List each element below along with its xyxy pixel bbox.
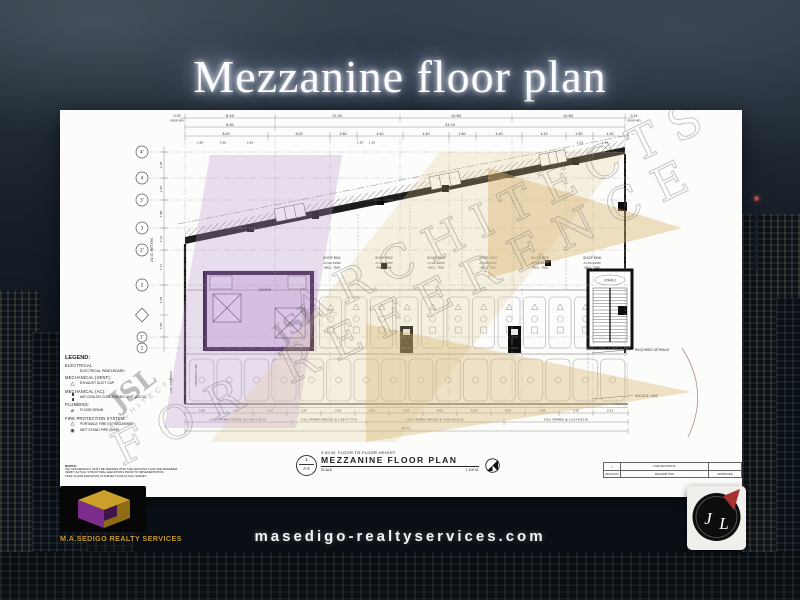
notes: NOTES: ANY DISCREPANCY MUST BE VERIFIED … [65,464,255,478]
dim-label: 3.00 [159,323,163,330]
dim-label: 1.30 [357,141,364,145]
top-dimensions: 0.25 8.40 12.00 10.80 10.80 0.25 (ROW WP… [170,114,640,145]
detail-number: 1 [297,456,316,464]
dim-label: 6.00 [295,132,302,136]
dim-label: 1.88 [197,141,204,145]
exhaust-duct-cap-icon: △ [68,382,77,387]
revision-triangle-icon: △ [604,463,621,470]
detail-reference-bubble: 1 A-4 [296,455,317,476]
dim-label: 33.20 [445,123,455,127]
dim-label: 8.40 [226,114,235,118]
dim-label: 10.80 [451,114,462,118]
dim-label: 8.80 [226,123,234,127]
shop-name: SHOP M01 [323,256,341,260]
company-name: M.A.SEDIGO REALTY SERVICES [60,534,250,543]
revision-header-row: REVISION DESCRIPTION APPROVED [604,470,741,478]
legend-item-label: AIR COOLED CONDENSING UNIT (ACCU) [80,396,146,400]
legend-item-label: PORTABLE FIRE EXTINGUISHER [80,423,133,427]
sheet-number: A-4 [297,465,316,473]
dim-label: 2.60 [458,132,465,136]
shop-note: (INCL. T&B) [324,266,341,270]
website-url: masedigo-realtyservices.com [250,528,550,545]
legend-item: ◉ WET STAND PIPE (WSP) [68,429,169,434]
dim-note: (ROW WP) [627,119,640,123]
note-line: FINAL FLOOR ELEVATION IS SUBJECT FOR ACT… [65,475,255,478]
antenna-light [754,196,759,201]
wet-stand-pipe-icon: ◉ [68,429,77,434]
dim-label: 0.25 [173,114,180,118]
jl-logo: J L [687,486,746,550]
legend-item: ⌀ FLOOR DRAIN [68,409,169,414]
revision-col-appr: APPROVED [709,471,741,478]
poster: Mezzanine floor plan [0,0,800,600]
legend-item: AIR COOLED CONDENSING UNIT (ACCU) [68,395,169,400]
grid-bubble-label: 4' [140,150,144,156]
stair-label: STAIR-2 [604,279,616,283]
legend-heading: MECHANICAL (AC): [65,389,169,394]
shop-area: A=54.92SM [583,261,601,265]
legend-heading: FIRE PROTECTION SYSTEM: [65,416,169,421]
legend-item-label: WET STAND PIPE (WSP) [80,429,119,433]
jl-logo-mark: J L [687,486,746,550]
page-title: Mezzanine floor plan [0,54,800,100]
scale-value: 1:100 M. [466,468,479,472]
dim-note: (ROW WP) [170,119,183,123]
grid-bubble-label: 2' [140,248,144,254]
title-block-main: 3.50 M. FLOOR TO FLOOR HEIGHT MEZZANINE … [321,450,479,472]
shop-area: A=40.70SM [323,261,341,265]
north-arrow-icon [485,458,500,473]
grid-bubble-label: 3' [140,198,144,204]
dim-label: 4.50 [606,132,613,136]
antenna-spire [755,200,758,270]
dim-label: 3.30 [247,141,254,145]
dim-label: 2.60 [575,132,582,136]
legend-item-label: ELECTRICAL PANELBOARD [80,370,125,374]
title-block: 1 A-4 3.50 M. FLOOR TO FLOOR HEIGHT MEZZ… [296,450,506,482]
grid-bubble-label: 1' [140,335,144,341]
grid-bubble-label: 3 [141,226,144,232]
dim-label: 1.50 [577,141,584,145]
revision-label: FOR REVISIONS [621,463,709,470]
dim-label: 3.12 [159,236,163,243]
scale-row: SCALE 1:100 M. [321,468,479,472]
legend-title: LEGEND: [65,355,169,361]
dim-label: 4.40 [422,132,429,136]
legend-heading: PLUMBING: [65,402,169,407]
city-skyline-strip [0,552,800,600]
scale-label: SCALE [321,468,332,472]
legend-item: ELECTRICAL PANELBOARD [68,370,169,374]
accu-icon [68,395,77,400]
dim-label: 4.25 [540,132,547,136]
dim-label: 2.88 [159,211,163,218]
revision-row: △ FOR REVISIONS [604,463,741,470]
shop-name: SHOP M06 [583,256,601,260]
legend-heading: ELECTRICAL [65,363,169,368]
jl-monogram-l: L [718,514,728,533]
dim-label: 2.65 [159,186,163,193]
legend-item-label: EXHAUST DUCT CAP [80,382,114,386]
fire-extinguisher-icon: △ [68,422,77,427]
frame-note: 3 EQ. FRAMES @ 3.31=9.92 M. [544,418,589,422]
grid-bubble-label: 1 [141,346,144,352]
dim-label: 1.30 [369,141,376,145]
stair-grid-diamond [136,308,149,322]
revision-table: △ FOR REVISIONS REVISION DESCRIPTION APP… [603,462,742,478]
legend-item-label: FLOOR DRAIN [80,409,103,413]
grid-bubble-label: 2 [141,283,144,289]
dim-label: 2.60 [339,132,346,136]
legend-heading: MECHANICAL (VENT): [65,375,169,380]
drawing-title: MEZZANINE FLOOR PLAN [321,455,479,467]
dim-label: 4.40 [495,132,502,136]
revision-col-rev: REVISION [604,471,621,478]
dim-label: 5.00 [159,297,163,304]
company-logo [60,486,146,532]
grid-bubble-label: 4 [141,176,144,182]
dim-label: 2.60 [220,141,227,145]
revision-empty-cell [709,463,741,470]
legend-item: △ PORTABLE FIRE EXTINGUISHER [68,422,169,427]
dim-label: 2.38 [159,162,163,169]
dim-label: 3.71 [159,264,163,271]
legend: LEGEND: ELECTRICAL ELECTRICAL PANELBOARD… [65,355,169,434]
dim-label: 8.00 [222,132,229,136]
company-logo-mark [60,486,146,532]
dim-label: 10.80 [563,114,574,118]
floor-plan-drawing: ADMIN STAIR-2 [60,110,742,497]
dim-label: 4.40 [376,132,383,136]
dim-label: 12.00 [332,114,343,118]
meters-axis-label: 24.00 METERS [150,238,154,263]
shop-note: (INCL. T&B) [584,266,601,270]
floor-drain-icon: ⌀ [68,409,77,414]
plan-sheet: ADMIN STAIR-2 [60,110,742,497]
required-setback-label: REQUIRED SETBACK [635,348,670,352]
revision-col-desc: DESCRIPTION [621,471,709,478]
dim-label: 3.31 [607,409,614,413]
dim-label: 1.45 [602,141,609,145]
dim-label: 0.25 [630,114,637,118]
legend-item: △ EXHAUST DUCT CAP [68,382,169,387]
